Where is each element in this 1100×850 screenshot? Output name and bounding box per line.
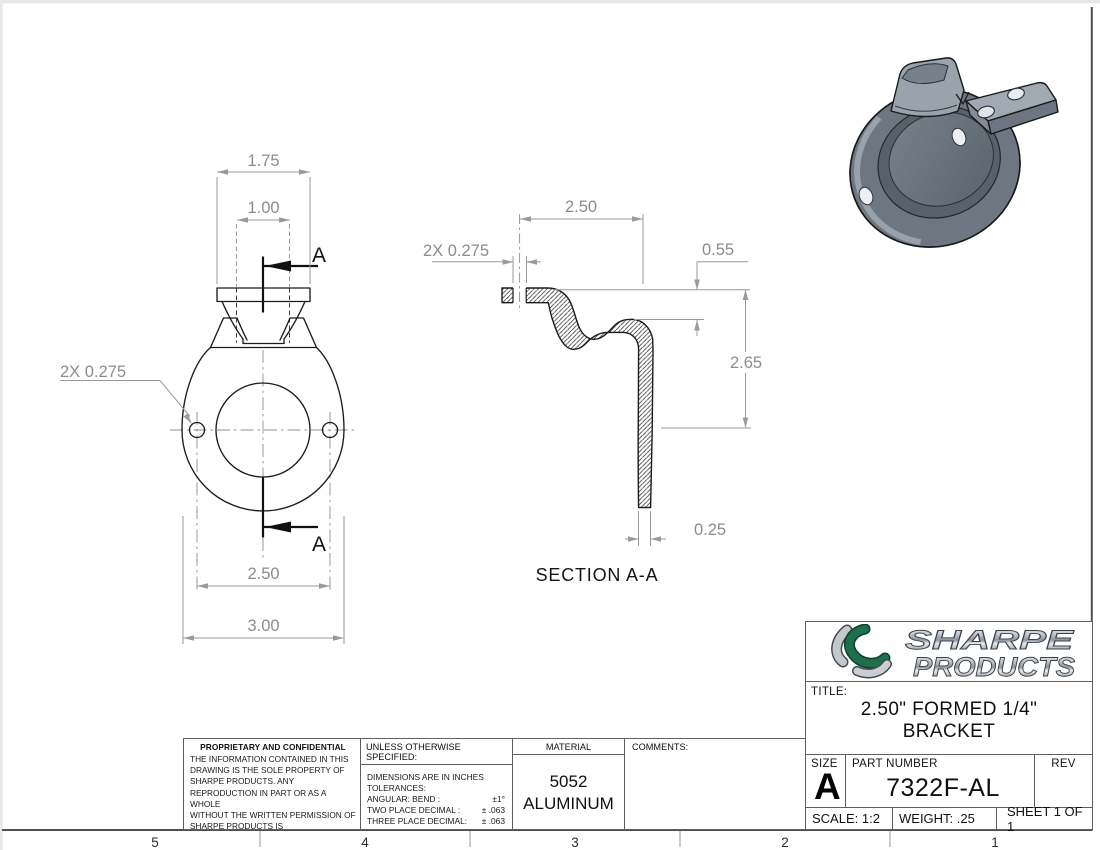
tolerance-row: TWO PLACE DECIMAL : ± .063 bbox=[367, 805, 507, 816]
weight-value: WEIGHT: .25 bbox=[892, 808, 996, 829]
iso-view bbox=[827, 58, 1058, 272]
front-dim-lines bbox=[60, 172, 344, 644]
zone-number: 1 bbox=[991, 835, 999, 850]
front-ear-left bbox=[211, 318, 248, 348]
tolerance-label: THREE PLACE DECIMAL: bbox=[367, 816, 467, 827]
section-profile bbox=[502, 288, 653, 508]
zone-number: 4 bbox=[361, 835, 369, 850]
title-block-mid-row: SIZE A PART NUMBER 7322F-AL REV bbox=[806, 755, 1092, 808]
material-value: 5052 ALUMINUM bbox=[513, 771, 624, 815]
zone-number: 2 bbox=[781, 835, 789, 850]
tolerances-body: DIMENSIONS ARE IN INCHES TOLERANCES: ANG… bbox=[361, 765, 512, 827]
tolerance-value: ± .063 bbox=[482, 816, 505, 827]
proprietary-cell: PROPRIETARY AND CONFIDENTIAL THE INFORMA… bbox=[183, 738, 360, 830]
tolerance-row: ANGULAR: BEND : ±1° bbox=[367, 794, 507, 805]
section-arrowhead-bottom bbox=[265, 522, 291, 533]
proprietary-line: SHARPE PRODUCTS. ANY bbox=[190, 776, 356, 787]
material-cell: MATERIAL 5052 ALUMINUM bbox=[512, 738, 624, 830]
tolerance-row: THREE PLACE DECIMAL: ± .063 bbox=[367, 816, 507, 827]
dim-overall-width: 3.00 bbox=[247, 617, 279, 635]
logo-line1: SHARPE bbox=[905, 625, 1074, 655]
dim-hole: 2X 0.275 bbox=[423, 242, 489, 260]
notes-strip: PROPRIETARY AND CONFIDENTIAL THE INFORMA… bbox=[183, 738, 805, 830]
sharpe-logo: SHARPE PRODUCTS bbox=[817, 624, 1081, 680]
section-arrowhead-top bbox=[265, 261, 291, 272]
tolerances-cell: UNLESS OTHERWISE SPECIFIED: DIMENSIONS A… bbox=[360, 738, 512, 830]
zone-number: 3 bbox=[571, 835, 579, 850]
material-grade: 5052 bbox=[513, 771, 624, 793]
rev-cell: REV bbox=[1035, 755, 1092, 807]
tolerance-label: TWO PLACE DECIMAL : bbox=[367, 805, 460, 816]
size-value: A bbox=[814, 770, 845, 804]
rev-label: REV bbox=[1035, 758, 1092, 770]
tolerance-value: ±1° bbox=[492, 794, 505, 805]
drawing-title: 2.50" FORMED 1/4" BRACKET bbox=[806, 682, 1092, 743]
section-dim-arrows bbox=[503, 216, 749, 542]
tolerance-value: ± .063 bbox=[482, 805, 505, 816]
logo-text: SHARPE PRODUCTS bbox=[905, 625, 1075, 680]
sheet-value: SHEET 1 OF 1 bbox=[996, 808, 1092, 829]
front-section-cut: A A bbox=[263, 244, 326, 556]
proprietary-line: DRAWING IS THE SOLE PROPERTY OF bbox=[190, 765, 356, 776]
scale-value: SCALE: 1:2 bbox=[806, 811, 892, 826]
front-ear-right bbox=[280, 318, 317, 348]
tolerances-header: UNLESS OTHERWISE SPECIFIED: bbox=[361, 739, 512, 765]
section-dim-text: 2.50 2X 0.275 0.55 2.65 0.25 bbox=[423, 198, 762, 539]
logo-line2: PRODUCTS bbox=[913, 652, 1075, 680]
proprietary-title: PROPRIETARY AND CONFIDENTIAL bbox=[190, 742, 356, 752]
proprietary-body: THE INFORMATION CONTAINED IN THIS DRAWIN… bbox=[190, 754, 356, 830]
proprietary-line: WITHOUT THE WRITTEN PERMISSION OF bbox=[190, 810, 356, 821]
title-label: TITLE: bbox=[811, 686, 847, 698]
sheet-edge-left bbox=[0, 0, 3, 850]
dim-tab-holes: 1.00 bbox=[247, 199, 279, 217]
drawing-title-line1: 2.50" FORMED 1/4" bbox=[806, 699, 1092, 721]
dim-height: 2.65 bbox=[730, 354, 762, 372]
logo-cell: SHARPE PRODUCTS bbox=[806, 622, 1092, 682]
sheet-edge-top bbox=[0, 0, 1100, 4]
tolerances-line: DIMENSIONS ARE IN INCHES bbox=[367, 772, 507, 783]
section-letter-bottom: A bbox=[312, 533, 326, 556]
title-block-bottom-row: SCALE: 1:2 WEIGHT: .25 SHEET 1 OF 1 bbox=[806, 808, 1092, 829]
dim-depth: 2.50 bbox=[565, 198, 597, 216]
title-cell: TITLE: 2.50" FORMED 1/4" BRACKET bbox=[806, 682, 1092, 755]
drawing-title-line2: BRACKET bbox=[806, 721, 1092, 743]
drawing-sheet: 5 4 3 2 1 bbox=[0, 0, 1100, 850]
part-number-cell: PART NUMBER 7322F-AL bbox=[846, 755, 1035, 807]
front-view: A A 1.75 1.00 bbox=[60, 152, 356, 644]
comments-cell: COMMENTS: bbox=[624, 738, 805, 830]
tolerances-line: TOLERANCES: bbox=[367, 783, 507, 794]
dim-bolt-span: 2.50 bbox=[247, 565, 279, 583]
proprietary-line: THE INFORMATION CONTAINED IN THIS bbox=[190, 754, 356, 765]
logo-tube-icon bbox=[837, 629, 887, 673]
zone-number: 5 bbox=[151, 835, 159, 850]
tolerance-label: ANGULAR: BEND : bbox=[367, 794, 440, 805]
section-caption: SECTION A-A bbox=[536, 565, 659, 585]
comments-label: COMMENTS: bbox=[625, 739, 805, 752]
dim-tab-width: 1.75 bbox=[247, 152, 279, 170]
dim-flange-holes: 2X 0.275 bbox=[60, 363, 126, 381]
section-dim-lines bbox=[432, 214, 751, 546]
proprietary-line: REPRODUCTION IN PART OR AS A WHOLE bbox=[190, 788, 356, 810]
proprietary-line: SHARPE PRODUCTS IS bbox=[190, 821, 356, 830]
front-dim-text: 1.75 1.00 2X 0.275 2.50 3.00 bbox=[60, 152, 280, 635]
size-cell: SIZE A bbox=[806, 755, 846, 807]
front-centerlines bbox=[170, 350, 356, 591]
part-number-label: PART NUMBER bbox=[852, 758, 1034, 770]
title-block: SHARPE PRODUCTS TITLE: 2.50" FORMED 1/4"… bbox=[805, 621, 1093, 830]
section-view: 2.50 2X 0.275 0.55 2.65 0.25 SECTION A-A bbox=[423, 198, 765, 585]
part-number-value: 7322F-AL bbox=[852, 774, 1034, 803]
material-label: MATERIAL bbox=[513, 739, 624, 755]
dim-offset: 0.55 bbox=[702, 241, 734, 259]
dim-thickness: 0.25 bbox=[694, 521, 726, 539]
zone-numbers: 5 4 3 2 1 bbox=[151, 835, 999, 850]
section-letter-top: A bbox=[312, 244, 326, 267]
material-type: ALUMINUM bbox=[513, 793, 624, 815]
